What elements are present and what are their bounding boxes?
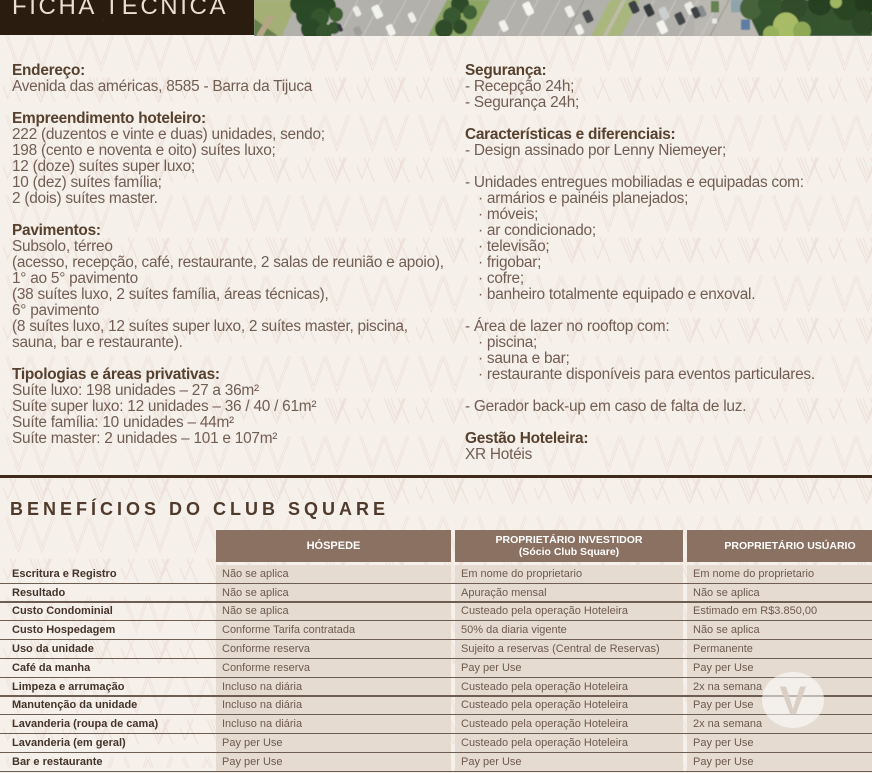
svg-text:FICHA TÉCNICA: FICHA TÉCNICA [12,0,228,20]
svg-text:V: V [780,679,807,723]
